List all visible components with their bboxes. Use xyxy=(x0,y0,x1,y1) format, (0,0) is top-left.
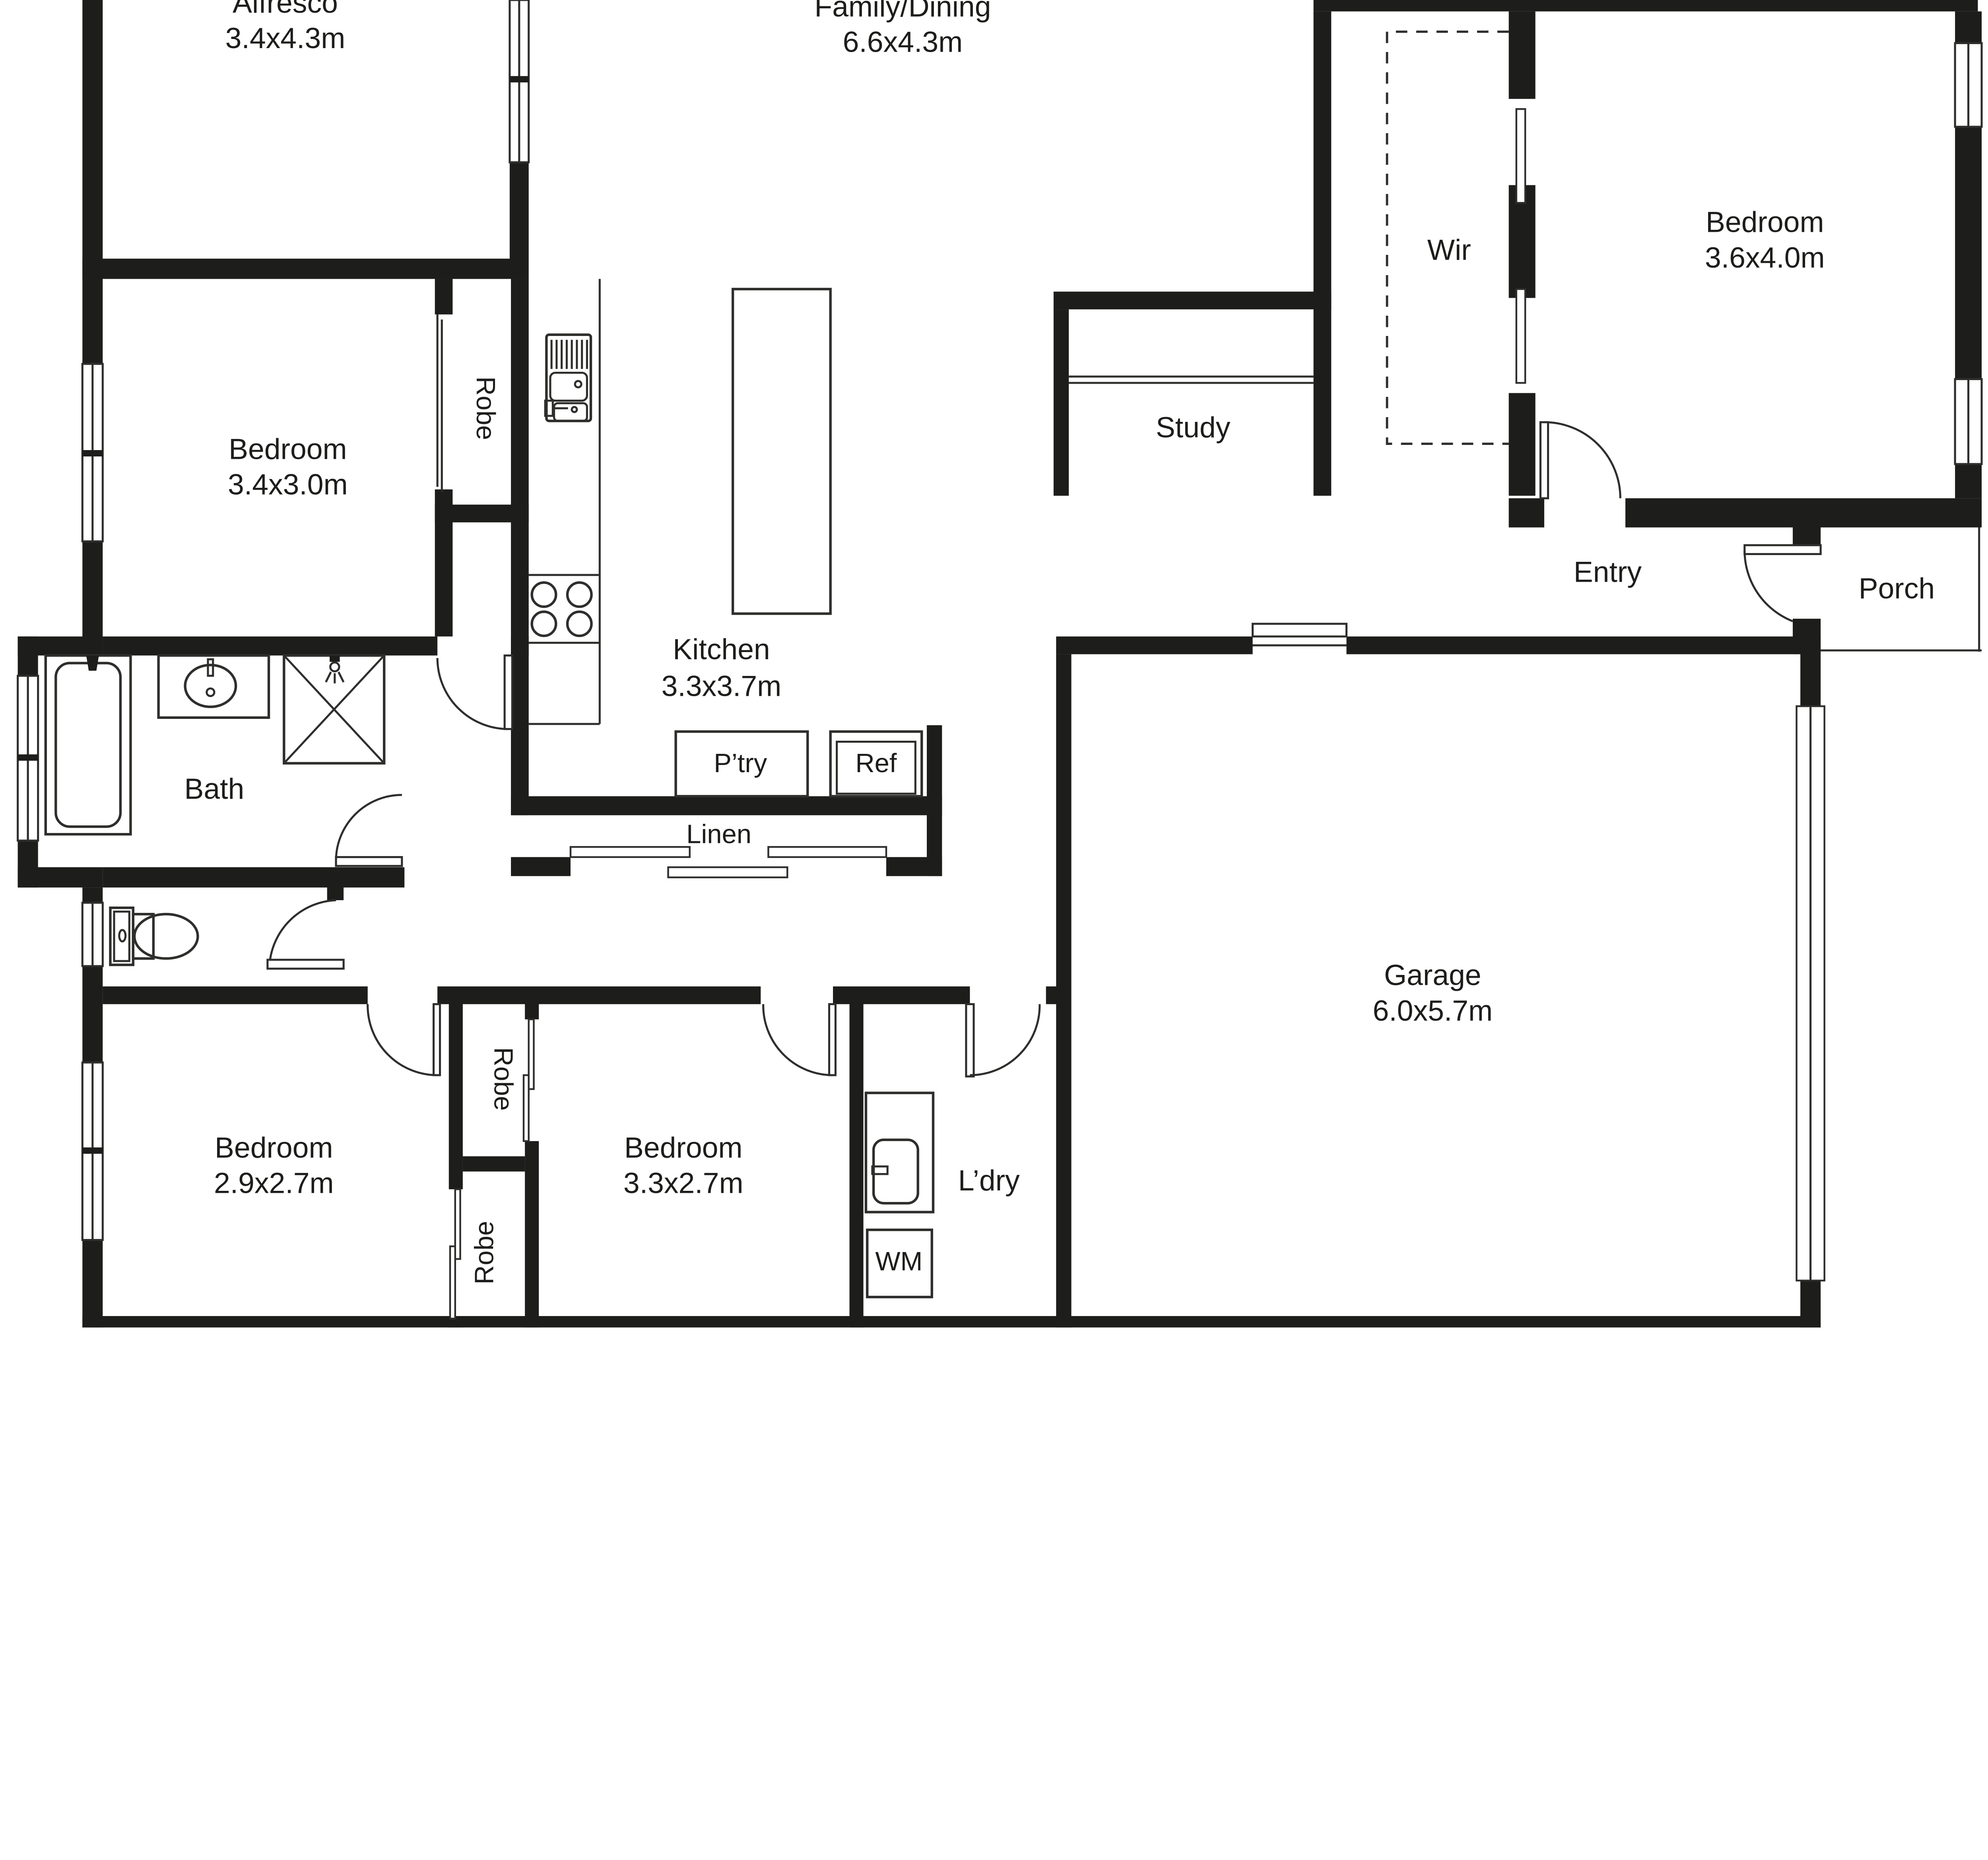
room-label-entry: Entry xyxy=(1574,556,1642,588)
wall-segment xyxy=(511,279,529,815)
window xyxy=(82,1062,103,1240)
door-swing-wc xyxy=(268,900,344,969)
front-door-swing xyxy=(1745,545,1821,621)
wall-segment xyxy=(82,887,103,903)
robe-sliding-door-bedroom3 xyxy=(450,1189,460,1318)
room-dims-garage: 6.0x5.7m xyxy=(1373,994,1493,1027)
wall-segment xyxy=(103,637,437,656)
door-swing-bedroom2 xyxy=(437,656,512,729)
wall-segment xyxy=(1509,393,1536,496)
wall-segment xyxy=(1509,498,1544,527)
room-label-pantry: P’try xyxy=(714,748,767,778)
wall-segment xyxy=(82,259,528,279)
walls xyxy=(18,0,1982,1328)
wall-segment xyxy=(525,1141,539,1328)
wall-segment xyxy=(1955,12,1982,43)
wall-segment xyxy=(833,986,970,1004)
wall-segment xyxy=(18,637,103,656)
garage-door xyxy=(1796,706,1824,1281)
room-label-bedroom4: Bedroom xyxy=(624,1131,743,1164)
wall-segment xyxy=(1314,0,1978,12)
room-label-robe-bed3: Robe xyxy=(469,1221,499,1284)
door-swing-laundry xyxy=(966,1004,1040,1077)
wall-segment xyxy=(886,857,942,876)
room-label-alfresco: Alfresco xyxy=(233,0,338,19)
room-label-kitchen: Kitchen xyxy=(673,633,770,666)
room-label-laundry: L’dry xyxy=(958,1164,1020,1197)
wall-segment xyxy=(1800,1281,1821,1328)
wall-segment xyxy=(1955,464,1982,498)
window xyxy=(510,0,529,162)
island-bench xyxy=(733,289,831,614)
wall-segment xyxy=(437,986,761,1004)
floor-plan: Alfresco 3.4x4.3m Family/Dining 6.6x4.3m… xyxy=(0,0,1988,1328)
wall-segment xyxy=(1054,309,1069,496)
wall-segment xyxy=(435,279,453,315)
room-label-washing-machine: WM xyxy=(875,1246,922,1276)
robe-sliding-door-bedroom2 xyxy=(437,315,442,492)
floor-plan-drawing: Alfresco 3.4x4.3m Family/Dining 6.6x4.3m… xyxy=(0,0,1988,1328)
wall-segment xyxy=(510,162,529,258)
room-label-study: Study xyxy=(1156,411,1231,444)
cooktop-icon xyxy=(529,575,600,643)
window xyxy=(82,364,103,541)
wall-segment xyxy=(1509,12,1536,99)
kitchen-sink-icon xyxy=(545,335,591,421)
room-dims-bedroom2: 3.4x3.0m xyxy=(228,468,348,501)
wall-segment xyxy=(1625,498,1982,527)
garage-entry-step xyxy=(1253,624,1347,645)
room-label-bedroom-main: Bedroom xyxy=(1706,206,1824,239)
toilet-icon xyxy=(110,908,198,965)
door-swing-bedroom3 xyxy=(368,1004,440,1076)
kitchen-counter xyxy=(529,279,600,724)
wall-segment xyxy=(1346,637,1821,654)
room-label-garage: Garage xyxy=(1384,959,1481,992)
wall-segment xyxy=(849,1003,863,1327)
room-label-wir: Wir xyxy=(1427,234,1471,266)
door-swing-bath xyxy=(336,795,402,866)
window xyxy=(18,676,38,841)
room-label-bedroom3: Bedroom xyxy=(215,1131,333,1164)
wall-segment xyxy=(511,857,571,876)
study-desk xyxy=(1069,377,1313,383)
wall-segment xyxy=(449,1003,463,1189)
window xyxy=(82,903,103,966)
door-swing-bedroom4 xyxy=(763,1004,836,1076)
room-label-bedroom2: Bedroom xyxy=(229,433,347,465)
wall-segment xyxy=(103,867,404,887)
room-dims-family-dining: 6.6x4.3m xyxy=(843,26,963,58)
wall-segment xyxy=(103,986,367,1004)
wall-segment xyxy=(1955,127,1982,379)
wall-segment xyxy=(82,276,103,364)
shower-icon xyxy=(284,656,384,763)
doors xyxy=(268,109,1825,1318)
wall-segment xyxy=(1056,637,1252,654)
wall-segment xyxy=(525,1003,539,1019)
room-label-linen: Linen xyxy=(686,819,751,849)
wall-segment xyxy=(82,0,103,276)
fixtures xyxy=(46,32,1982,1297)
bathtub-icon xyxy=(46,656,131,835)
room-label-family-dining: Family/Dining xyxy=(814,0,991,23)
wall-segment xyxy=(1056,654,1071,1327)
room-label-bath: Bath xyxy=(184,773,244,805)
room-label-robe-bed4: Robe xyxy=(489,1047,518,1111)
wall-segment xyxy=(463,1156,525,1171)
window xyxy=(1955,43,1982,126)
wall-segment xyxy=(1793,619,1821,654)
door-swing-bedroom-main xyxy=(1540,422,1620,498)
room-label-fridge: Ref xyxy=(855,748,897,778)
room-dims-kitchen: 3.3x3.7m xyxy=(662,670,782,703)
wall-segment xyxy=(82,1240,103,1328)
wall-segment xyxy=(1314,12,1332,496)
room-dims-bedroom-main: 3.6x4.0m xyxy=(1705,241,1825,274)
room-label-porch: Porch xyxy=(1859,572,1935,605)
wall-segment xyxy=(327,882,344,900)
room-dims-alfresco: 3.4x4.3m xyxy=(225,22,346,54)
wall-segment xyxy=(18,867,103,887)
vanity-basin-icon xyxy=(159,656,269,718)
wall-segment xyxy=(82,1316,1821,1328)
room-dims-bedroom3: 2.9x2.7m xyxy=(214,1167,334,1200)
wall-segment xyxy=(435,489,453,637)
wall-segment xyxy=(1054,291,1331,309)
wall-segment xyxy=(82,966,103,1062)
room-label-robe-bed2: Robe xyxy=(471,377,501,440)
linen-sliding-doors xyxy=(571,847,886,878)
window xyxy=(1955,379,1982,464)
room-dims-bedroom4: 3.3x2.7m xyxy=(623,1167,744,1200)
windows xyxy=(18,0,1982,1240)
wall-segment xyxy=(927,725,942,876)
wall-segment xyxy=(511,796,942,815)
wall-segment xyxy=(1800,654,1821,706)
robe-sliding-door-bedroom4 xyxy=(524,1019,534,1141)
laundry-tub-icon xyxy=(866,1093,933,1212)
